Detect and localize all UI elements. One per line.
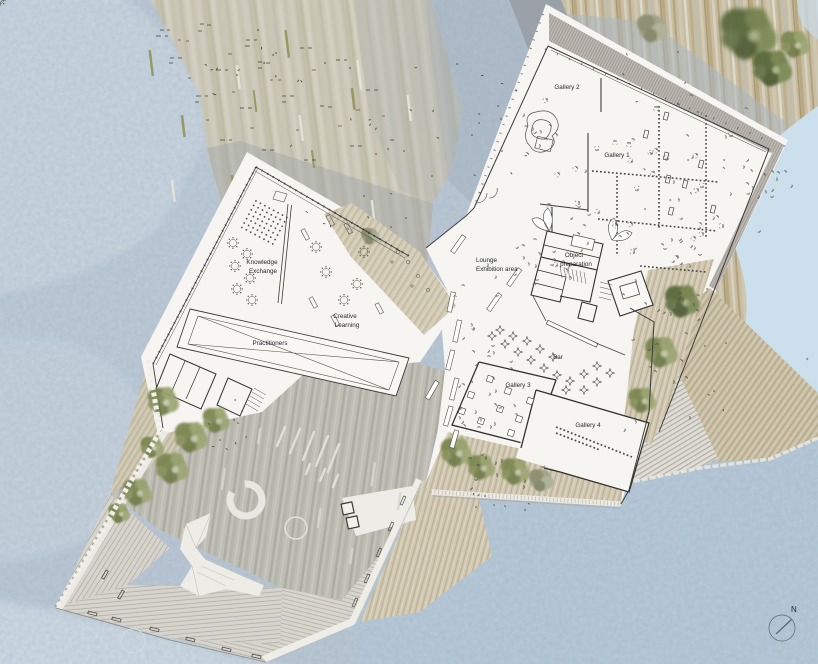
svg-text:Object: Object — [565, 252, 583, 259]
svg-text:preparation: preparation — [560, 261, 592, 268]
svg-text:Gallery 3: Gallery 3 — [505, 382, 531, 389]
svg-text:Practitioners: Practitioners — [253, 340, 288, 347]
svg-text:Exhibition area: Exhibition area — [476, 266, 518, 273]
svg-text:Creative: Creative — [333, 313, 357, 320]
svg-text:Exchange: Exchange — [249, 268, 278, 275]
svg-text:N: N — [791, 605, 797, 614]
svg-text:Learning: Learning — [335, 322, 360, 329]
svg-text:Lounge: Lounge — [476, 257, 498, 264]
svg-text:Gallery 1: Gallery 1 — [604, 152, 630, 159]
svg-text:Gallery 2: Gallery 2 — [554, 84, 580, 91]
svg-text:Bar: Bar — [553, 354, 563, 361]
svg-text:Gallery 4: Gallery 4 — [575, 422, 601, 429]
svg-text:Knowledge: Knowledge — [246, 259, 278, 266]
